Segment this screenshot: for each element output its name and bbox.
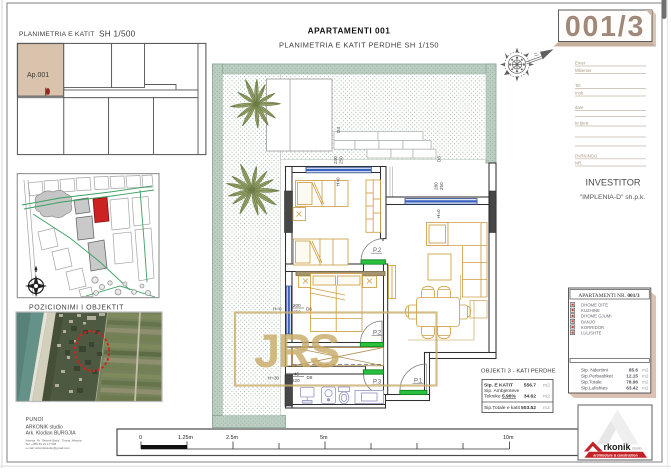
- svg-text:INVESTITOR: INVESTITOR: [586, 178, 641, 188]
- svg-text:2.5m: 2.5m: [226, 435, 238, 441]
- svg-text:D6: D6: [306, 307, 312, 312]
- svg-text:5m: 5m: [320, 435, 328, 441]
- svg-text:APARTAMENTI 001: APARTAMENTI 001: [308, 26, 391, 36]
- svg-text:m2: m2: [543, 394, 550, 400]
- svg-text:D5: D5: [437, 156, 442, 162]
- svg-text:m2: m2: [543, 405, 550, 411]
- svg-text:78.96: 78.96: [626, 380, 638, 385]
- svg-text:studio: studio: [632, 447, 642, 451]
- svg-text:Tel: Tel: [575, 83, 581, 88]
- svg-text:POZICIONIMI I OBJEKTIT: POZICIONIMI I OBJEKTIT: [29, 305, 124, 312]
- svg-text:m2: m2: [642, 368, 649, 373]
- svg-text:JRS: JRS: [254, 324, 339, 377]
- svg-text:m2: m2: [642, 374, 649, 379]
- svg-text:250: 250: [439, 182, 444, 190]
- svg-text:12.15: 12.15: [626, 374, 638, 379]
- svg-text:H=0: H=0: [336, 177, 341, 186]
- svg-text:OBJEKTI 3 - KATI PERDHE: OBJEKTI 3 - KATI PERDHE: [481, 369, 556, 375]
- svg-text:Teknike 5.96%: Teknike 5.96%: [484, 394, 516, 400]
- svg-text:date: date: [575, 105, 584, 110]
- svg-text:m2: m2: [642, 386, 649, 391]
- svg-text:m2: m2: [642, 380, 649, 385]
- svg-text:250: 250: [339, 156, 344, 164]
- svg-text:34.62: 34.62: [524, 394, 537, 400]
- svg-text:220: 220: [292, 378, 300, 383]
- svg-text:Sip.Perbashket: Sip.Perbashket: [581, 374, 613, 379]
- svg-text:Sip.Totale e katit: Sip.Totale e katit: [484, 405, 521, 411]
- svg-text:10m: 10m: [503, 435, 514, 441]
- svg-text:SH 1/500: SH 1/500: [99, 30, 136, 39]
- svg-text:e-mail: arkonikstudio@gmail.co: e-mail: arkonikstudio@gmail.com: [26, 446, 71, 450]
- svg-text:H=0: H=0: [436, 209, 441, 218]
- svg-text:280: 280: [434, 182, 439, 190]
- svg-text:DHOME DITE: DHOME DITE: [581, 303, 608, 308]
- svg-text:NR.: NR.: [575, 161, 582, 166]
- svg-text:H=0: H=0: [273, 307, 282, 312]
- svg-text:Sip.Lulishtes: Sip.Lulishtes: [581, 386, 608, 391]
- svg-text:m2: m2: [543, 383, 550, 389]
- svg-text:PLANIMETRIA E KATIT PERDHE SH: PLANIMETRIA E KATIT PERDHE SH 1/150: [279, 41, 439, 50]
- svg-text:Emer: Emer: [575, 61, 586, 66]
- svg-text:85.6: 85.6: [629, 368, 639, 373]
- svg-text:PARKINGU: PARKINGU: [575, 153, 597, 158]
- svg-text:LULISHTE: LULISHTE: [581, 331, 602, 336]
- svg-text:mob: mob: [575, 91, 584, 96]
- svg-text:240: 240: [333, 156, 338, 164]
- svg-text:0: 0: [139, 435, 142, 441]
- svg-text:Sip. Ambjenteve: Sip. Ambjenteve: [484, 388, 520, 394]
- svg-text:D4: D4: [336, 127, 341, 133]
- svg-text:200: 200: [293, 303, 301, 308]
- svg-text:001/3: 001/3: [565, 11, 645, 43]
- svg-text:556.7: 556.7: [524, 383, 537, 389]
- svg-text:Sip. Ndertimi: Sip. Ndertimi: [581, 368, 608, 373]
- svg-text:63.42: 63.42: [626, 386, 638, 391]
- svg-text:architecture & construction: architecture & construction: [593, 453, 637, 457]
- svg-text:te tjera: te tjera: [575, 121, 589, 126]
- svg-text:BANJO: BANJO: [581, 319, 596, 324]
- svg-text:503.52: 503.52: [521, 405, 536, 411]
- svg-text:Ap.001: Ap.001: [27, 72, 49, 79]
- svg-text:"IMPLENIA-D" sh.p.k.: "IMPLENIA-D" sh.p.k.: [580, 194, 646, 201]
- svg-text:PUNOI: PUNOI: [26, 417, 44, 423]
- svg-text:KORRIDOR: KORRIDOR: [581, 325, 604, 330]
- svg-text:rkonik: rkonik: [604, 442, 632, 452]
- svg-text:ARKONIK studio: ARKONIK studio: [26, 424, 63, 430]
- svg-text:Sip.Totale: Sip.Totale: [581, 380, 602, 385]
- svg-text:Ark. Klodian BURGJIA: Ark. Klodian BURGJIA: [26, 431, 77, 437]
- svg-text:1.25m: 1.25m: [178, 435, 193, 441]
- svg-text:KUZHINE: KUZHINE: [581, 308, 600, 313]
- svg-text:Sip. E KATIT: Sip. E KATIT: [484, 383, 513, 389]
- svg-text:Mbiemer: Mbiemer: [575, 68, 592, 73]
- svg-text:APARTAMENTI NR. 001/3: APARTAMENTI NR. 001/3: [578, 293, 640, 299]
- svg-text:DHOME GJUMI: DHOME GJUMI: [581, 314, 612, 319]
- svg-text:PLANIMETRIA E KATIT: PLANIMETRIA E KATIT: [19, 31, 95, 38]
